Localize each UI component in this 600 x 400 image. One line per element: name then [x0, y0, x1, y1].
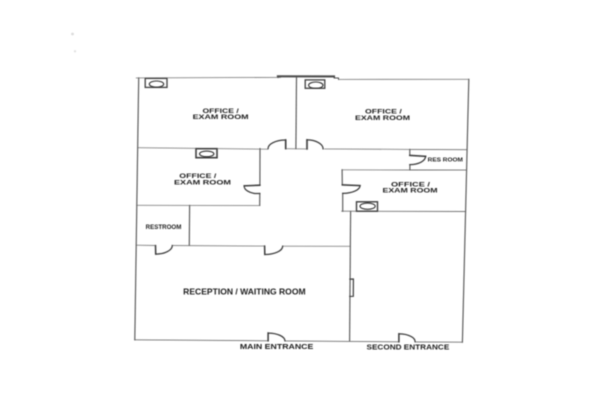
svg-text:RECEPTION / WAITING ROOM: RECEPTION / WAITING ROOM [183, 288, 306, 297]
svg-text:EXAM ROOM: EXAM ROOM [193, 114, 250, 121]
svg-text:RESTROOM: RESTROOM [146, 224, 182, 231]
svg-text:EXAM ROOM: EXAM ROOM [383, 187, 439, 194]
svg-text:EXAM ROOM: EXAM ROOM [174, 180, 232, 187]
svg-text:EXAM ROOM: EXAM ROOM [355, 115, 411, 122]
svg-text:RES ROOM: RES ROOM [428, 157, 464, 163]
svg-text:SECOND ENTRANCE: SECOND ENTRANCE [367, 343, 450, 352]
svg-text:MAIN ENTRANCE: MAIN ENTRANCE [240, 342, 314, 351]
